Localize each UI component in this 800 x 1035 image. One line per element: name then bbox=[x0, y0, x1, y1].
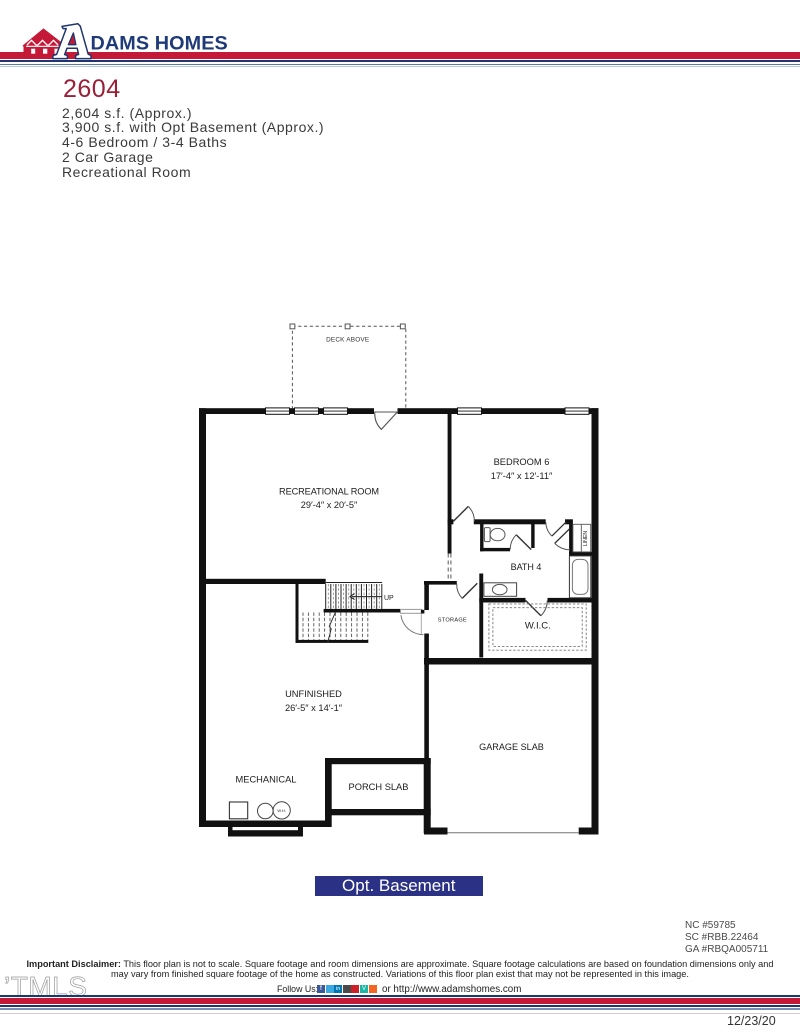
svg-text:GARAGE SLAB: GARAGE SLAB bbox=[479, 742, 544, 752]
svg-text:LINEN: LINEN bbox=[583, 531, 589, 547]
svg-text:UNFINISHED: UNFINISHED bbox=[285, 689, 342, 699]
svg-text:RECREATIONAL ROOM: RECREATIONAL ROOM bbox=[279, 487, 379, 497]
svg-text:UP: UP bbox=[384, 595, 394, 602]
svg-text:W.H.: W.H. bbox=[277, 808, 286, 813]
svg-text:BATH 4: BATH 4 bbox=[511, 562, 542, 572]
svg-text:PORCH SLAB: PORCH SLAB bbox=[349, 782, 409, 792]
svg-text:29′-4″ x 20′-5″: 29′-4″ x 20′-5″ bbox=[301, 500, 358, 510]
svg-text:BEDROOM 6: BEDROOM 6 bbox=[494, 457, 550, 467]
svg-text:17′-4″ x 12′-11″: 17′-4″ x 12′-11″ bbox=[491, 471, 553, 481]
svg-text:STORAGE: STORAGE bbox=[438, 617, 467, 623]
svg-text:W.I.C.: W.I.C. bbox=[525, 621, 551, 632]
svg-text:26′-5″ x 14′-1″: 26′-5″ x 14′-1″ bbox=[285, 703, 343, 713]
svg-text:MECHANICAL: MECHANICAL bbox=[236, 775, 297, 785]
svg-text:DECK ABOVE: DECK ABOVE bbox=[326, 337, 369, 344]
